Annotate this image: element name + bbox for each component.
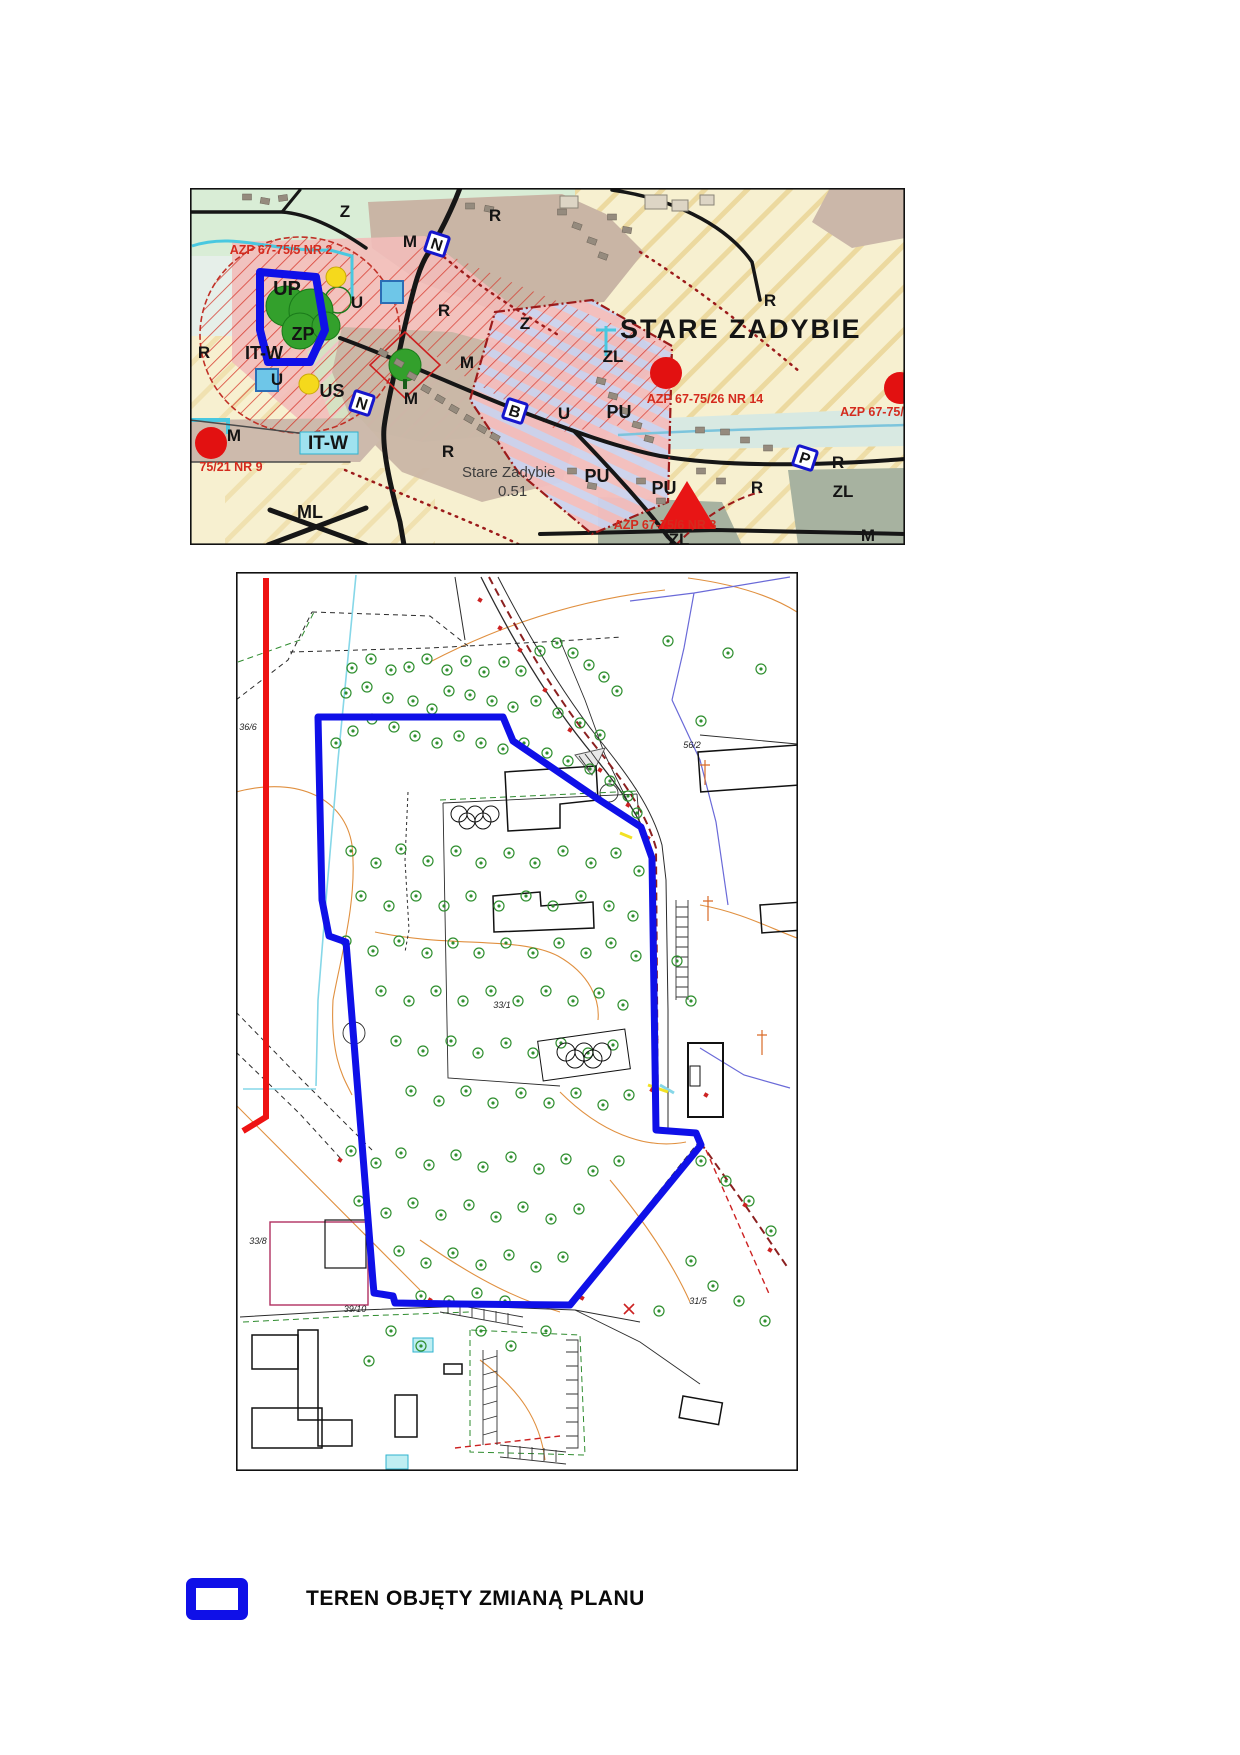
svg-text:ZP: ZP: [291, 324, 314, 344]
svg-text:R: R: [489, 206, 501, 225]
svg-text:ZL: ZL: [833, 482, 854, 501]
svg-text:R: R: [832, 453, 844, 472]
zoning-map-svg: NNBP ZRMRUPUZPRIT-WUUSMRZMMIT-WRZLUPUPUP…: [190, 188, 905, 545]
svg-text:31/5: 31/5: [689, 1296, 708, 1306]
svg-text:M: M: [404, 389, 418, 408]
svg-text:US: US: [319, 381, 344, 401]
survey-map-svg: 56/236/639/1031/533/133/8: [236, 572, 798, 1471]
svg-text:IT-W: IT-W: [308, 433, 348, 454]
svg-text:U: U: [558, 404, 570, 423]
svg-text:R: R: [764, 291, 776, 310]
svg-text:36/6: 36/6: [239, 722, 257, 732]
svg-text:R: R: [438, 301, 450, 320]
svg-text:U: U: [271, 370, 283, 389]
svg-text:PU: PU: [606, 402, 631, 422]
svg-text:M: M: [861, 526, 875, 545]
svg-text:39/10: 39/10: [344, 1304, 367, 1314]
svg-text:Z: Z: [340, 202, 350, 221]
svg-text:AZP 67-75/26 NR 14: AZP 67-75/26 NR 14: [647, 392, 764, 406]
svg-text:AZP 67-75/6 NR 3: AZP 67-75/6 NR 3: [614, 518, 717, 532]
legend-label: TEREN OBJĘTY ZMIANĄ PLANU: [306, 1587, 645, 1611]
svg-text:75/21 NR 9: 75/21 NR 9: [199, 460, 262, 474]
village-label: Stare Zadybie: [462, 464, 555, 481]
svg-text:ML: ML: [297, 502, 323, 522]
svg-text:56/2: 56/2: [683, 740, 701, 750]
svg-text:ZL: ZL: [603, 347, 624, 366]
zoning-map-container: NNBP ZRMRUPUZPRIT-WUUSMRZMMIT-WRZLUPUPUP…: [190, 188, 905, 545]
svg-text:AZP 67-75/: AZP 67-75/: [840, 405, 904, 419]
svg-text:M: M: [460, 353, 474, 372]
survey-map-container: 56/236/639/1031/533/133/8: [236, 572, 798, 1471]
svg-text:R: R: [751, 478, 763, 497]
plan-area-swatch-icon: [186, 1578, 248, 1620]
svg-text:R: R: [198, 343, 210, 362]
svg-text:R: R: [442, 442, 454, 461]
svg-text:ZL: ZL: [669, 530, 690, 545]
svg-text:M: M: [403, 232, 417, 251]
svg-text:AZP 67-75/5 NR 2: AZP 67-75/5 NR 2: [230, 243, 333, 257]
svg-text:33/8: 33/8: [249, 1236, 267, 1246]
village-area-value: 0.51: [498, 483, 527, 500]
svg-text:33/1: 33/1: [493, 1000, 511, 1010]
svg-text:U: U: [351, 293, 363, 312]
svg-text:M: M: [227, 426, 241, 445]
map-title: STARE ZADYBIE: [620, 314, 862, 344]
legend: TEREN OBJĘTY ZMIANĄ PLANU: [186, 1578, 645, 1620]
svg-text:Z: Z: [520, 314, 530, 333]
svg-text:IT-W: IT-W: [245, 343, 283, 363]
svg-text:UP: UP: [273, 278, 301, 300]
svg-text:PU: PU: [584, 466, 609, 486]
svg-text:PU: PU: [651, 478, 676, 498]
